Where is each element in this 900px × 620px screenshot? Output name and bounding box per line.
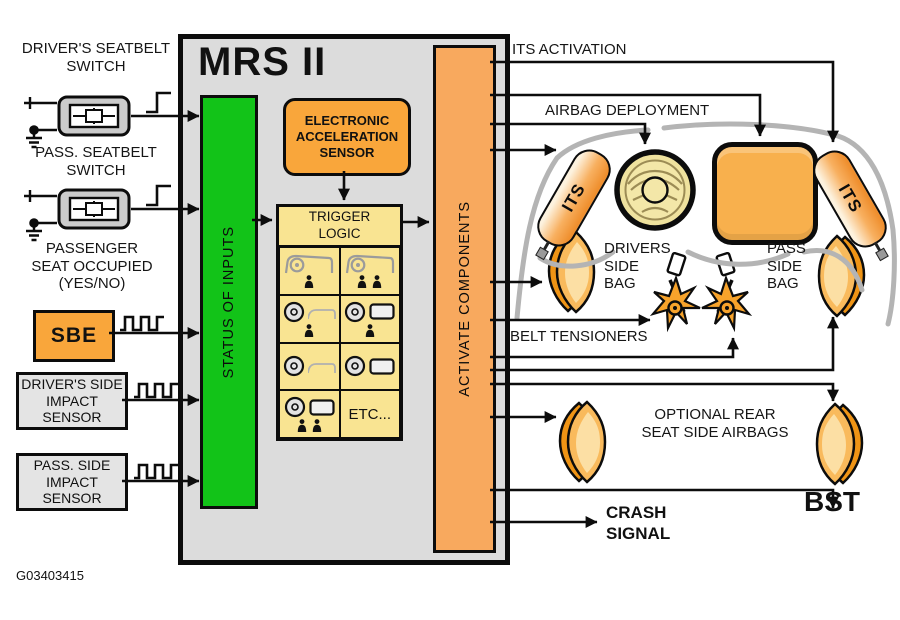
status-of-inputs-bar: STATUS OF INPUTS [200,95,258,509]
airbag-disc-icon [344,301,366,323]
activate-components-bar: ACTIVATE COMPONENTS [433,45,496,553]
mrs-ii-system-diagram: DRIVER'S SEATBELT SWITCH PASS. SEATBELT … [0,0,900,620]
mrs-title: MRS II [198,40,326,85]
airbag-deployment-label: AIRBAG DEPLOYMENT [545,102,709,120]
trigger-cell-wheel-one-occupant [279,247,340,295]
status-bar-label: STATUS OF INPUTS [221,226,237,378]
seatbelt-switch-icon [57,188,131,230]
trigger-cell-driver-bag-empty [279,343,340,391]
ground-node [30,219,37,226]
pulse-signal-icon [134,384,178,397]
plus-terminal-icon [24,97,57,109]
occupant-icon [311,419,323,432]
crash-signal-label: CRASH SIGNAL [606,502,670,545]
seatbelt-switch-icon [57,95,131,137]
wire-rear-bag-right [490,384,833,401]
pass-impact-sensor-box: PASS. SIDE IMPACT SENSOR [16,453,128,511]
occupant-icon [371,275,383,288]
trigger-logic-grid: ETC... [279,247,400,438]
pulse-signal-icon [120,317,164,330]
wire-driver-airbag [490,124,645,144]
airbag-square-icon [369,303,395,320]
steering-wheel-airbag-icon [613,148,697,232]
trigger-cell-both-bags-empty [340,343,401,391]
its-tensioner-left: ITS [531,143,618,253]
dash-ghost-icon [308,304,336,320]
trigger-cell-wheel-two-occupants [340,247,401,295]
pass-impact-sensor-label: PASS. SIDE IMPACT SENSOR [34,457,111,507]
trigger-logic-box: TRIGGER LOGIC [276,204,403,441]
occupant-icon [296,419,308,432]
its-label: ITS [834,181,866,217]
trigger-cell-both-bags-one-occupant [340,295,401,343]
drivers-side-bag-label: DRIVERS SIDE BAG [604,240,671,293]
bst-label: BST [804,486,860,518]
ground-terminal-icon [26,223,57,240]
ground-node [30,126,37,133]
belt-tensioners-label: BELT TENSIONERS [510,328,648,346]
dash-wheel-icon [284,253,334,274]
belt-tensioner-icon [700,252,752,336]
driver-seatbelt-switch-label: DRIVER'S SEATBELT SWITCH [16,40,176,75]
airbag-disc-icon [344,355,366,377]
plus-terminal-icon [24,190,57,202]
sbe-sensor-box: SBE [33,310,115,362]
rear-side-airbag-right-icon [810,400,866,490]
driver-impact-sensor-label: DRIVER'S SIDE IMPACT SENSOR [21,376,122,426]
pass-seatbelt-switch-label: PASS. SEATBELT SWITCH [16,144,176,179]
dash-ghost-icon [308,358,336,374]
driver-impact-sensor-box: DRIVER'S SIDE IMPACT SENSOR [16,372,128,430]
pulse-signal-icon [134,465,178,478]
passenger-airbag-icon [712,142,818,245]
trigger-cell-both-bags-two-occupants [279,390,340,438]
airbag-square-icon [309,399,335,416]
its-label: ITS [558,180,590,216]
trigger-cell-driver-bag-one-occupant [279,295,340,343]
figure-id: G03403415 [16,568,84,583]
trigger-logic-title: TRIGGER LOGIC [279,207,400,247]
occupant-icon [356,275,368,288]
acceleration-sensor-box: ELECTRONIC ACCELERATION SENSOR [283,98,411,176]
seat-occupied-label: PASSENGER SEAT OCCUPIED (YES/NO) [8,240,176,293]
step-signal-icon [146,93,171,112]
occupant-icon [303,275,315,288]
acceleration-sensor-label: ELECTRONIC ACCELERATION SENSOR [296,113,398,162]
its-activation-label: ITS ACTIVATION [512,41,626,59]
rear-side-airbag-left-icon [556,398,612,488]
sbe-label: SBE [51,324,97,348]
dash-wheel-icon [345,253,395,274]
airbag-disc-icon [283,355,305,377]
airbag-disc-icon [283,301,305,323]
occupant-icon [364,324,376,337]
airbag-disc-icon [284,396,306,418]
airbag-square-icon [369,358,395,375]
trigger-cell-etc: ETC... [340,390,401,438]
activate-bar-label: ACTIVATE COMPONENTS [457,201,473,397]
pass-side-bag-label: PASS SIDE BAG [767,240,806,293]
optional-rear-airbags-label: OPTIONAL REAR SEAT SIDE AIRBAGS [622,406,808,441]
occupant-icon [303,324,315,337]
step-signal-icon [146,186,171,205]
